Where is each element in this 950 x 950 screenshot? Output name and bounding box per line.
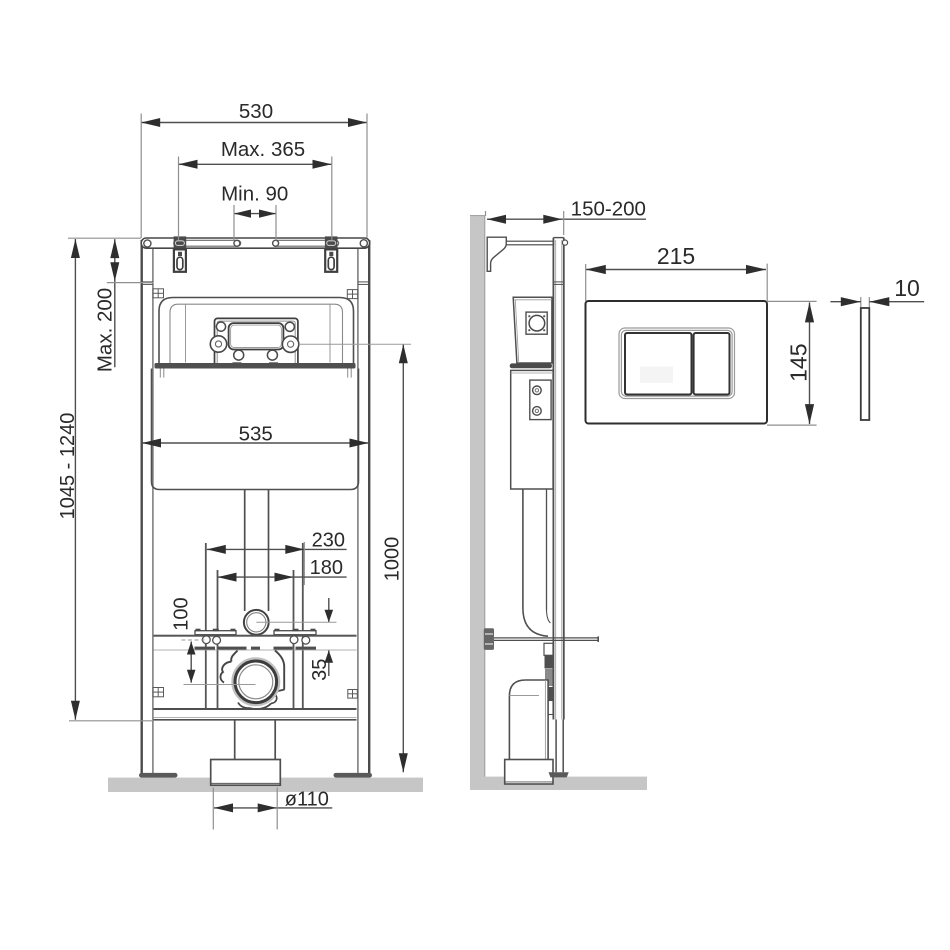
svg-text:145: 145	[785, 344, 811, 382]
svg-text:10: 10	[894, 275, 920, 301]
svg-text:215: 215	[657, 243, 695, 269]
